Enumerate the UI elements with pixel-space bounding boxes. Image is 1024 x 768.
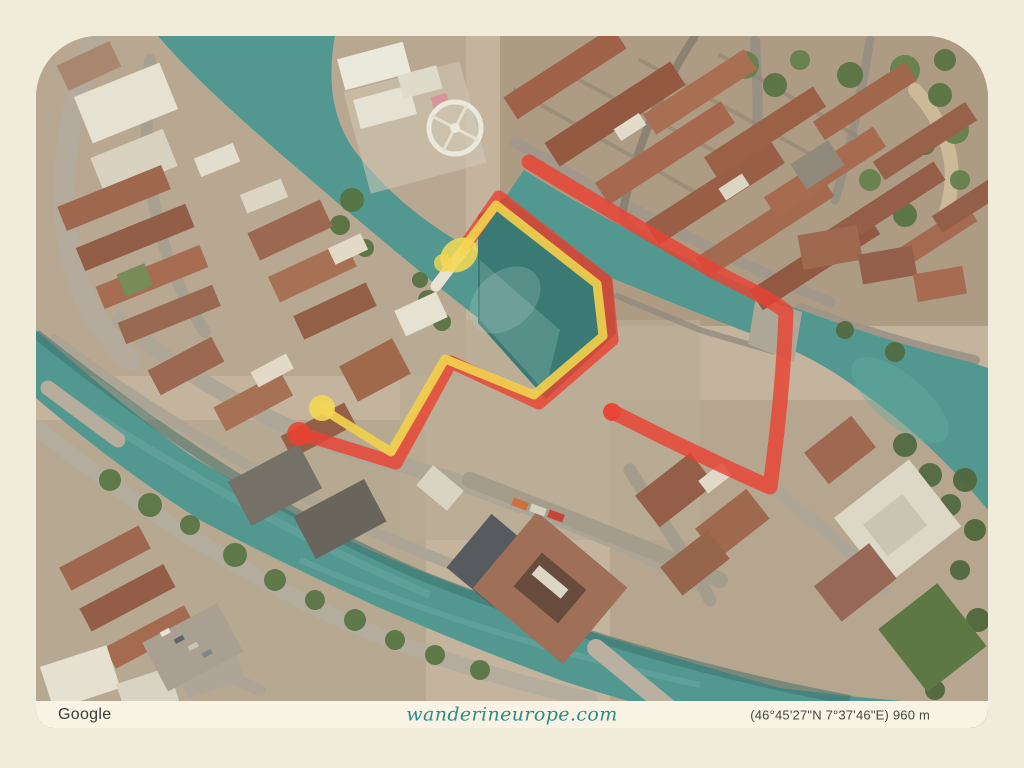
photo-frame: Google wanderineurope.com (46°45'27"N 7°… — [0, 0, 1024, 768]
photo-tint — [36, 36, 988, 728]
attribution-bar: Google wanderineurope.com (46°45'27"N 7°… — [36, 701, 988, 728]
google-watermark: Google — [58, 706, 111, 724]
map-image: Google wanderineurope.com (46°45'27"N 7°… — [36, 36, 988, 728]
satellite-map-art — [36, 36, 988, 728]
website-watermark: wanderineurope.com — [406, 703, 617, 725]
coordinates-label: (46°45'27"N 7°37'46"E) 960 m — [750, 707, 930, 722]
